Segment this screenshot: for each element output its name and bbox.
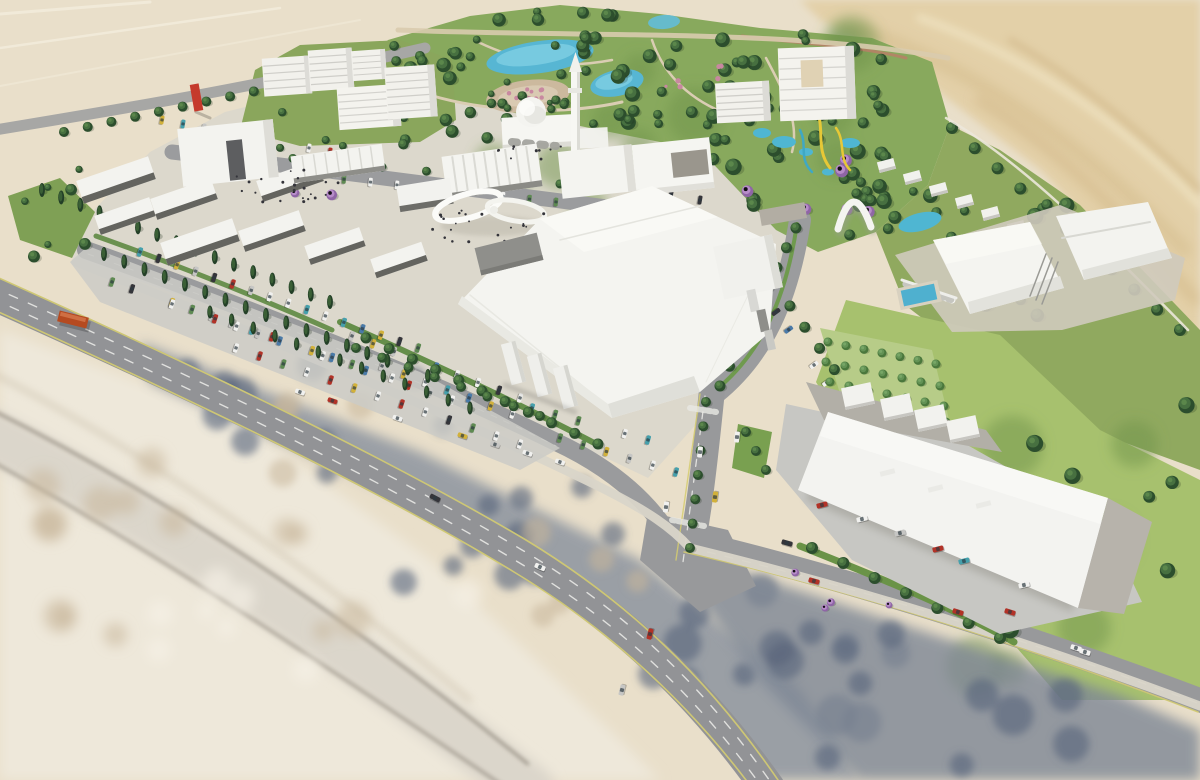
render-canvas — [0, 0, 1200, 780]
apartment-block-5 — [384, 64, 438, 119]
waterpark-pool-1 — [753, 128, 771, 138]
apartment-block-2 — [308, 48, 355, 92]
scene-root — [0, 0, 1200, 780]
apartment-block-3 — [351, 49, 387, 81]
waterpark-pool-5 — [822, 169, 834, 176]
apartment-block-1 — [262, 55, 313, 96]
minaret — [571, 72, 580, 154]
mid-box-1 — [558, 144, 637, 198]
minaret-balcony — [568, 88, 582, 93]
tower-arch-hole — [801, 60, 824, 88]
car — [734, 430, 741, 442]
waterpark-pool-3 — [799, 148, 813, 156]
mid-box-2-annex — [671, 149, 709, 178]
car — [697, 445, 704, 457]
mosque-dome-highlight — [519, 100, 535, 116]
waterpark-pool-2 — [772, 136, 796, 148]
tower-striped — [715, 81, 771, 124]
canopy-hub — [490, 206, 498, 214]
aerial-site-render — [0, 0, 1200, 780]
